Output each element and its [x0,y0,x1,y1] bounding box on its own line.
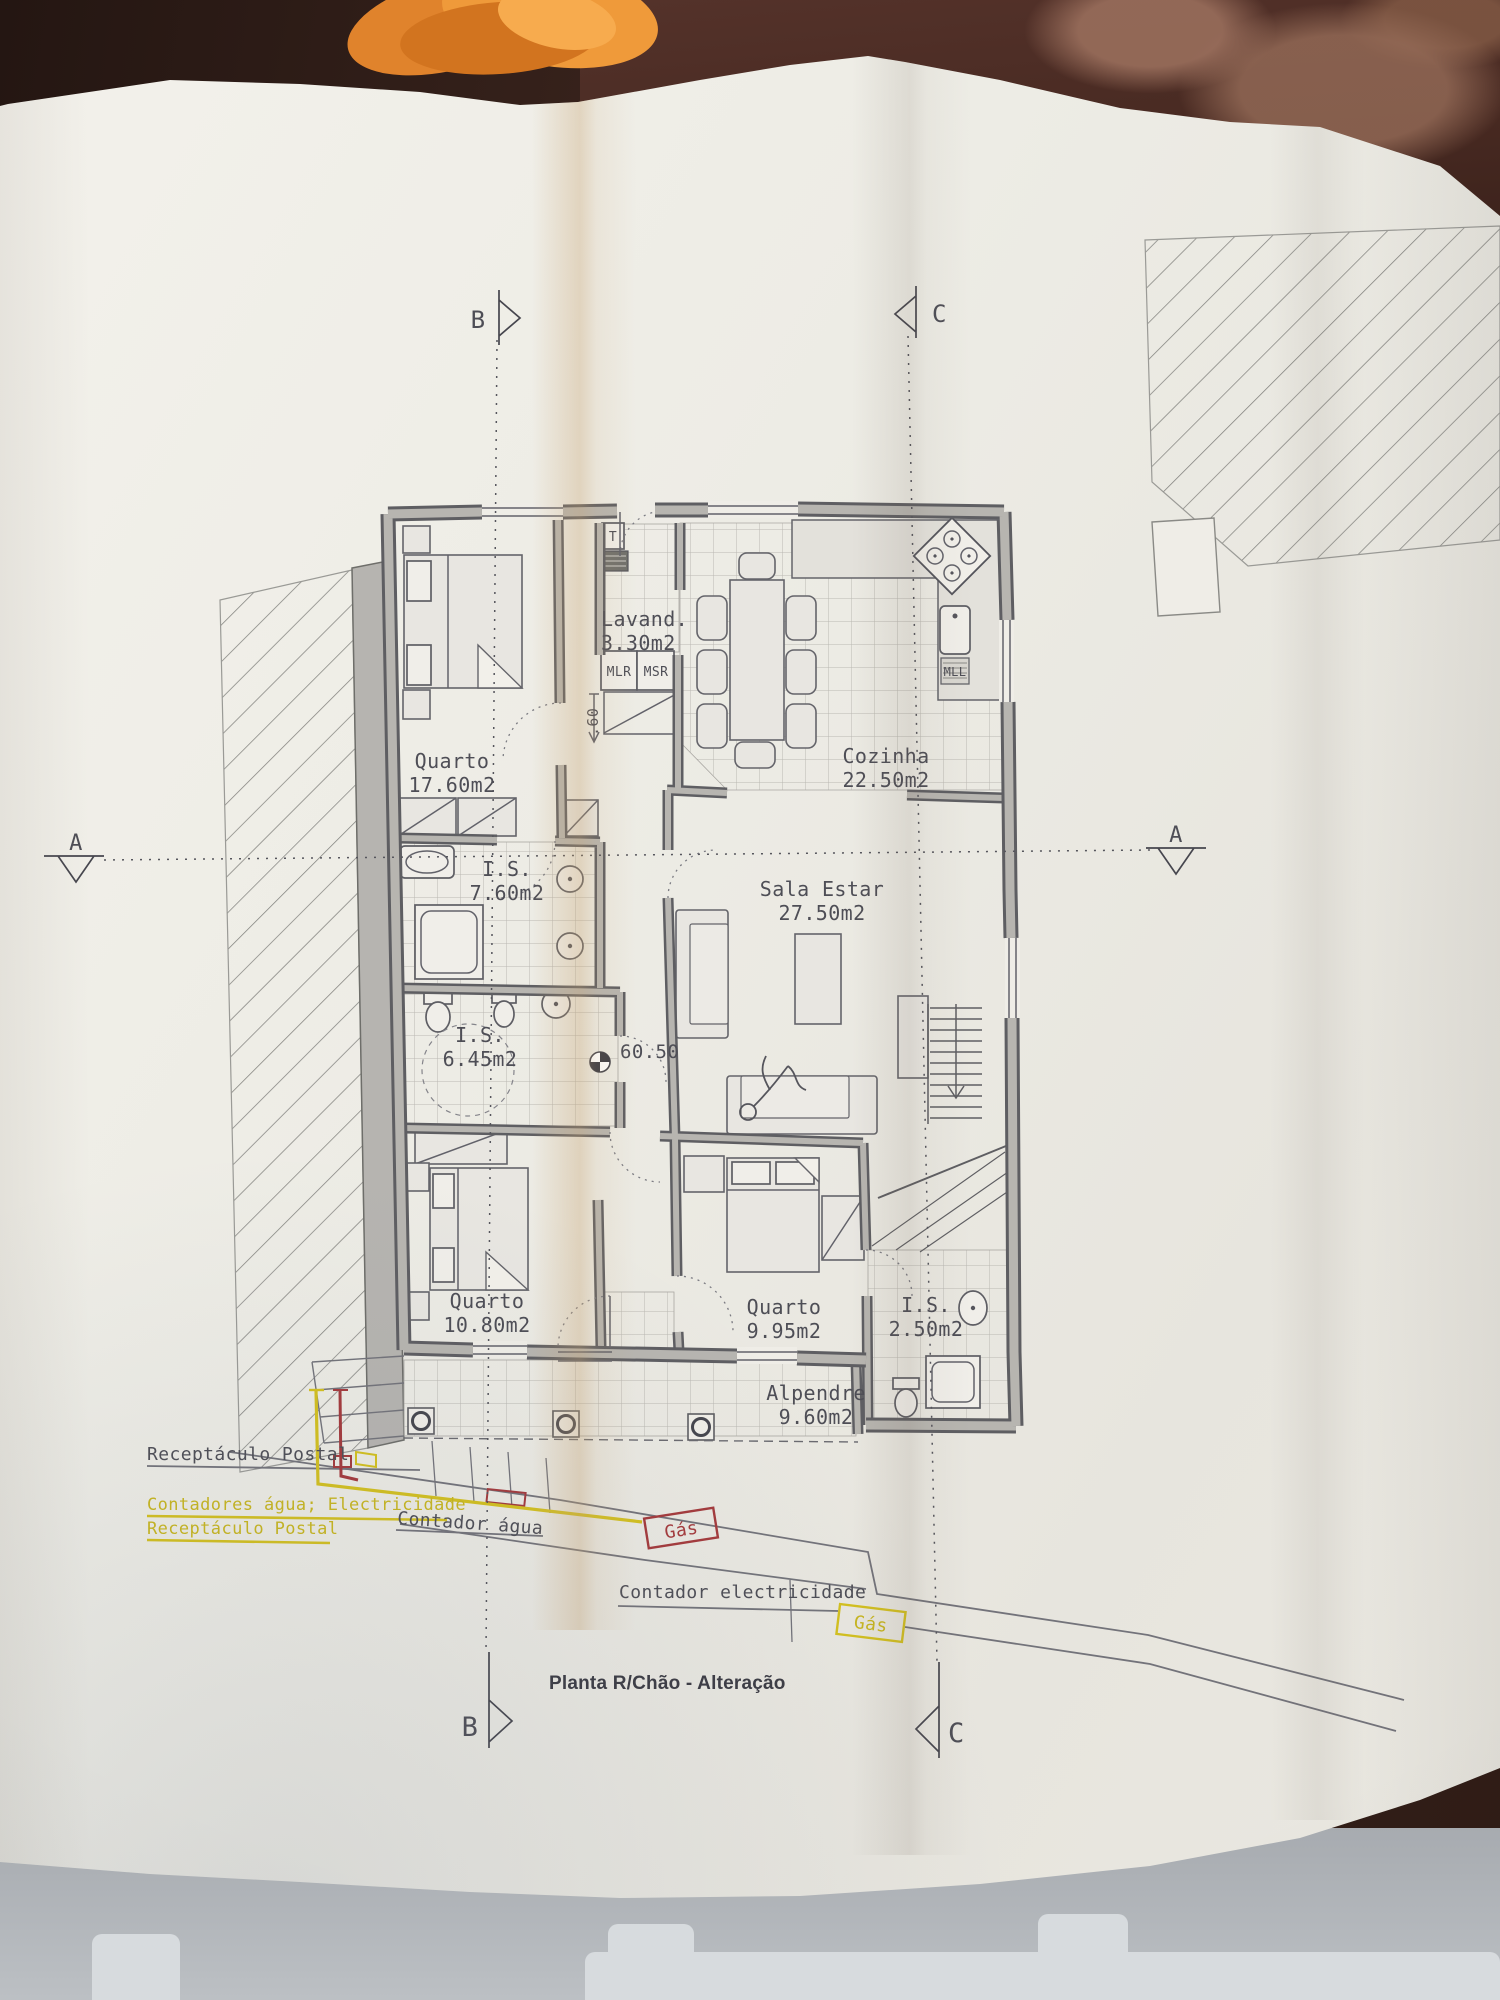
paper-shading [0,0,1500,2000]
photo-scene: Quarto 17.60m2 Lavand. 3.30m2 T MLR MSR … [0,0,1500,2000]
orange-cloth [345,0,680,90]
paper-sheet: Quarto 17.60m2 Lavand. 3.30m2 T MLR MSR … [0,0,1500,2000]
